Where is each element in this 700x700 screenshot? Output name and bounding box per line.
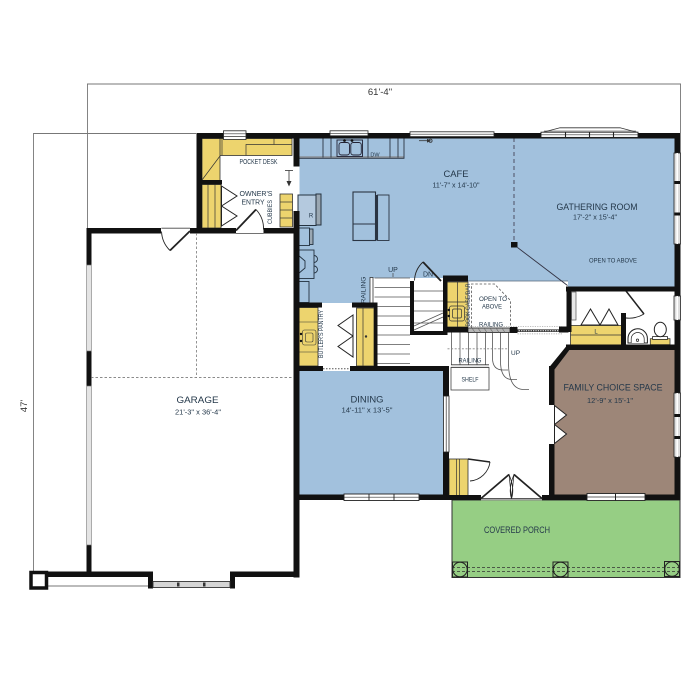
svg-text:GARAGE: GARAGE: [177, 395, 219, 406]
svg-text:12'-9" x 15'-1": 12'-9" x 15'-1": [587, 396, 633, 405]
svg-text:GATHERING ROOM: GATHERING ROOM: [557, 202, 638, 213]
svg-text:ABOVE: ABOVE: [482, 304, 503, 311]
svg-text:OPEN TO ABOVE: OPEN TO ABOVE: [589, 258, 638, 265]
svg-text:DW: DW: [370, 153, 380, 159]
svg-text:21'-3" x 36'-4": 21'-3" x 36'-4": [175, 408, 221, 417]
svg-text:47': 47': [19, 400, 30, 413]
svg-text:CUBBIES: CUBBIES: [268, 200, 274, 224]
svg-text:17'-2" x 15'-4": 17'-2" x 15'-4": [573, 213, 617, 222]
svg-text:CAFE: CAFE: [444, 169, 469, 180]
svg-text:FAMILY CHOICE SPACE: FAMILY CHOICE SPACE: [564, 383, 663, 394]
svg-text:DN: DN: [423, 272, 433, 279]
svg-text:BUTLER'S PANTRY: BUTLER'S PANTRY: [318, 309, 325, 358]
svg-text:61'-4": 61'-4": [368, 87, 392, 98]
svg-text:RAILING: RAILING: [479, 322, 503, 329]
svg-text:14'-11" x 13'-5": 14'-11" x 13'-5": [342, 406, 393, 415]
svg-text:BOOK CASE/BAR: BOOK CASE/BAR: [466, 283, 472, 327]
svg-text:UP: UP: [511, 350, 520, 357]
svg-text:POCKET DESK: POCKET DESK: [240, 159, 278, 166]
svg-text:ENTRY: ENTRY: [242, 198, 265, 207]
svg-text:R: R: [309, 214, 314, 220]
svg-text:UP: UP: [388, 267, 398, 274]
svg-text:DINING: DINING: [351, 395, 384, 406]
svg-text:COVERED PORCH: COVERED PORCH: [484, 525, 550, 536]
svg-text:OPEN TO: OPEN TO: [479, 296, 507, 303]
svg-text:RAILING: RAILING: [459, 358, 482, 365]
svg-text:SHELF: SHELF: [462, 377, 479, 384]
svg-text:RAILING: RAILING: [361, 277, 368, 304]
svg-text:11'-7" x 14'-10": 11'-7" x 14'-10": [433, 181, 480, 190]
